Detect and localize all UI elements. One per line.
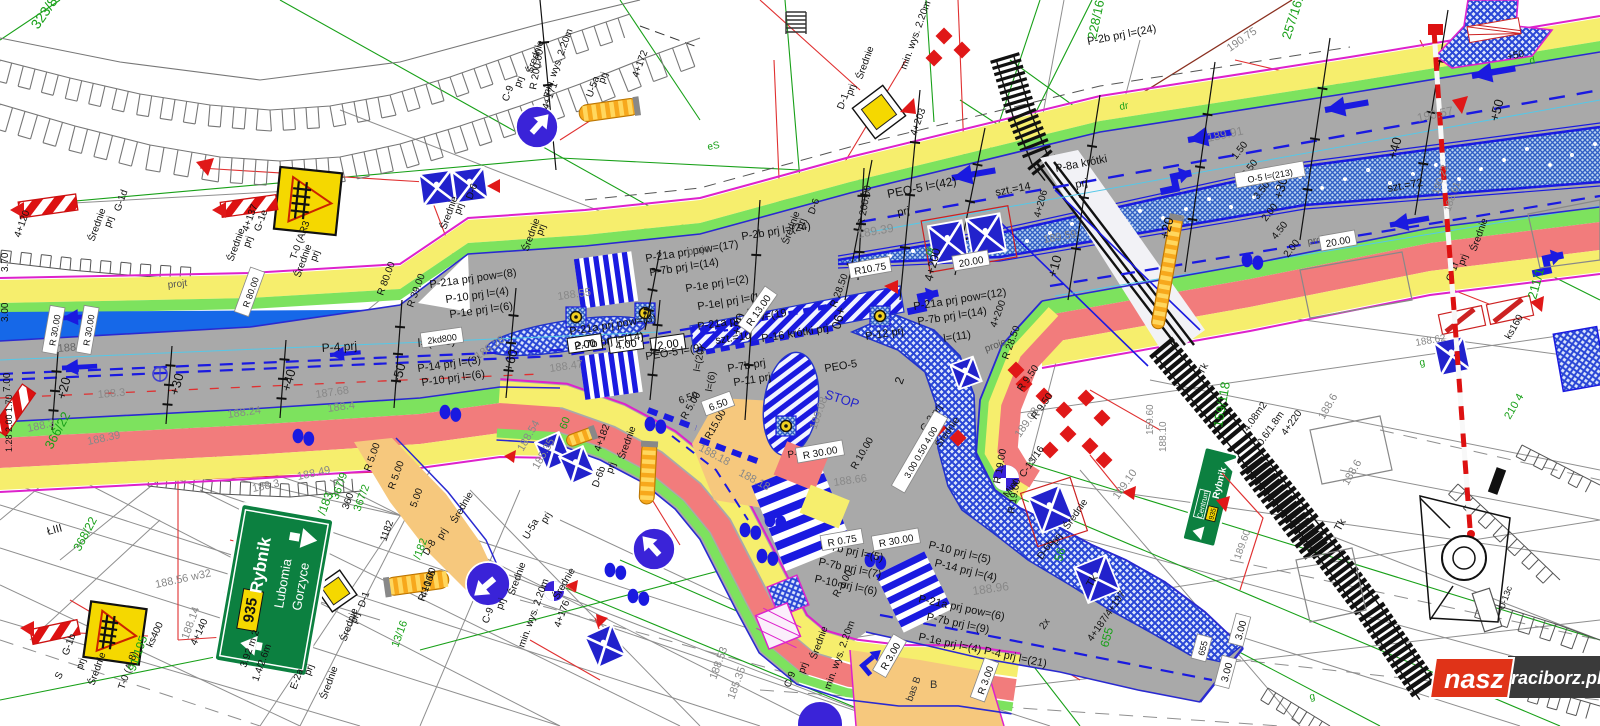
svg-text:projt: projt xyxy=(167,278,188,291)
svg-text:3.00: 3.00 xyxy=(0,302,11,322)
svg-text:prj: prj xyxy=(1074,177,1088,191)
svg-text:nasz: nasz xyxy=(1444,664,1505,694)
svg-text:prj: prj xyxy=(896,205,910,219)
svg-text:188.3: 188.3 xyxy=(97,387,125,401)
svg-text:7.00: 7.00 xyxy=(2,372,13,392)
svg-text:1.28 2.00 1.70: 1.28 2.00 1.70 xyxy=(4,394,14,452)
svg-text:eS: eS xyxy=(707,140,721,153)
svg-text:159.60: 159.60 xyxy=(1145,404,1156,435)
svg-text:P-4 prj: P-4 prj xyxy=(321,339,357,355)
svg-text:188.10: 188.10 xyxy=(1158,421,1169,452)
svg-text:B: B xyxy=(930,679,937,691)
svg-text:raciborz.pl: raciborz.pl xyxy=(1511,668,1600,688)
svg-text:3.70: 3.70 xyxy=(0,252,11,272)
